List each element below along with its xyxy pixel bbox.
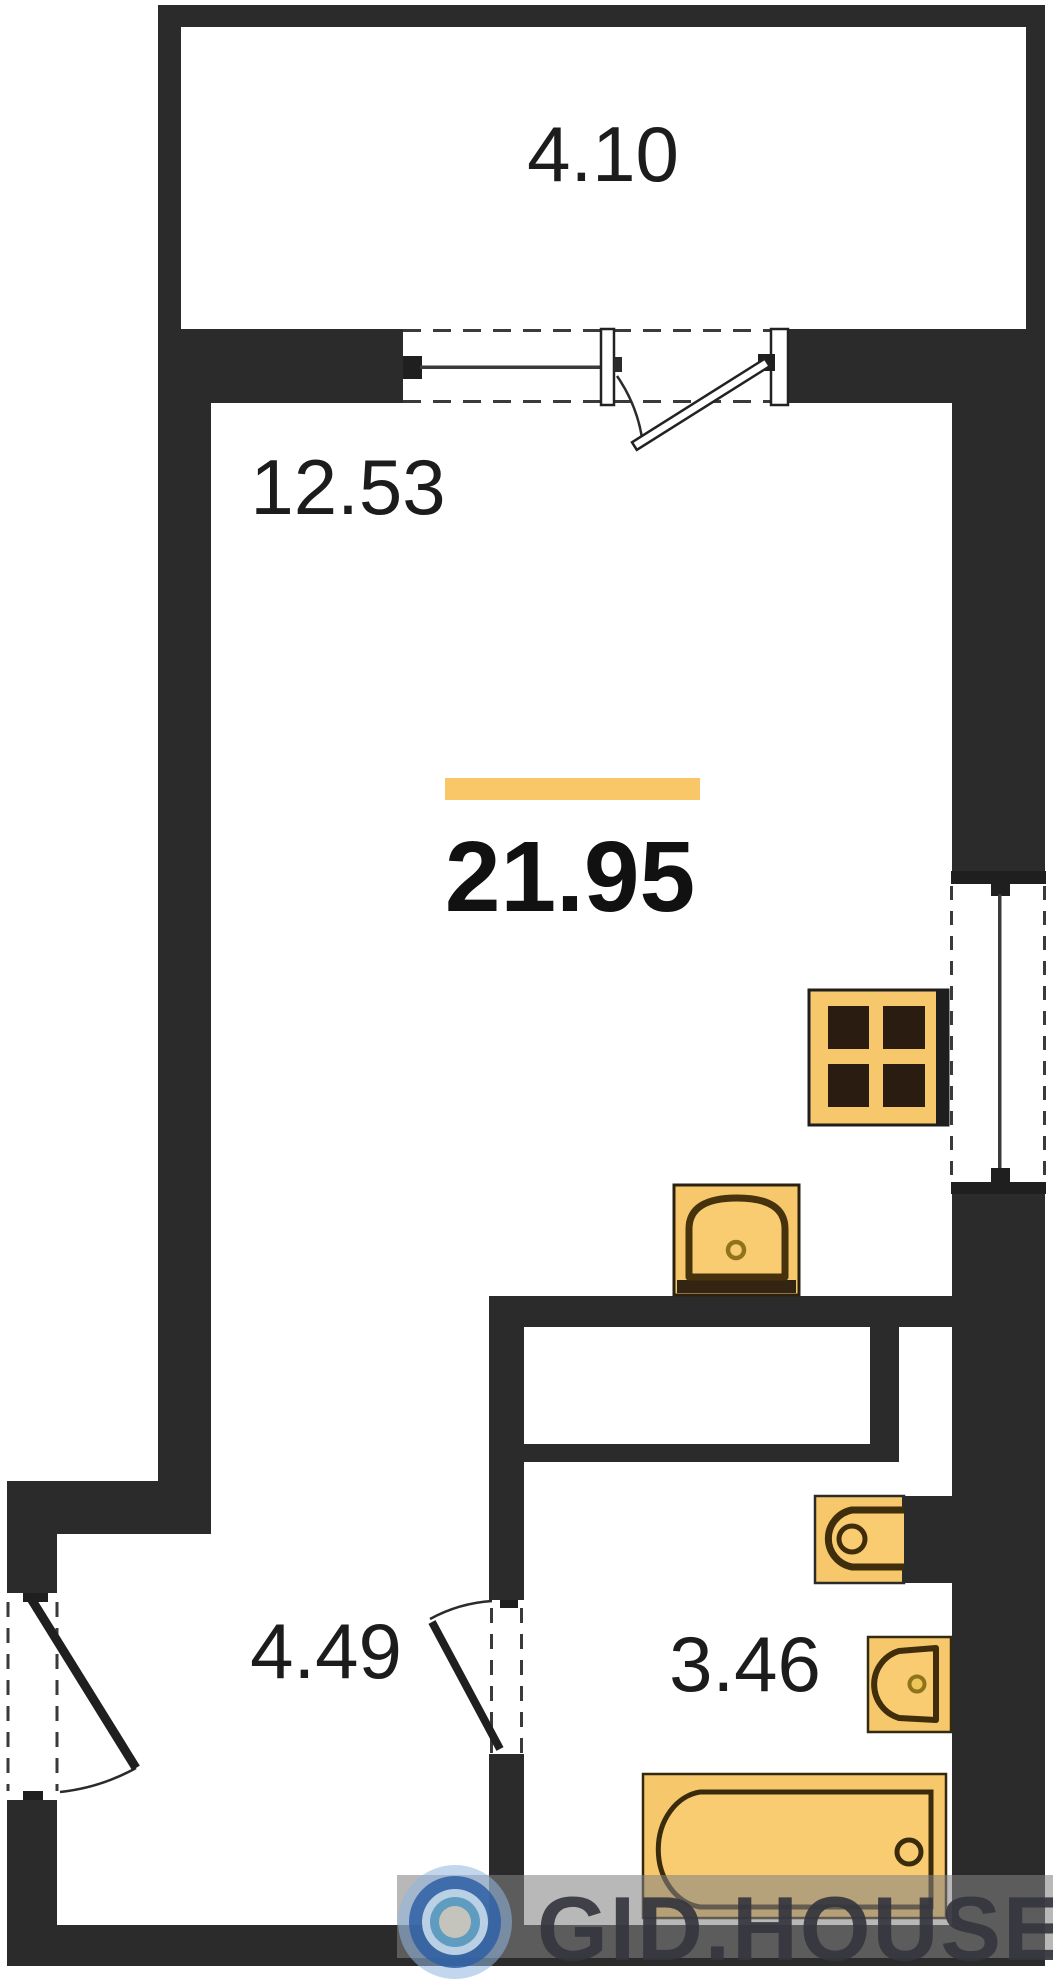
svg-text:GID.HOUSE: GID.HOUSE [537, 1879, 1053, 1980]
svg-text:21.95: 21.95 [445, 821, 695, 933]
svg-text:3.46: 3.46 [669, 1620, 821, 1708]
svg-text:12.53: 12.53 [250, 443, 445, 531]
svg-text:4.49: 4.49 [250, 1607, 402, 1695]
svg-text:4.10: 4.10 [527, 110, 679, 198]
